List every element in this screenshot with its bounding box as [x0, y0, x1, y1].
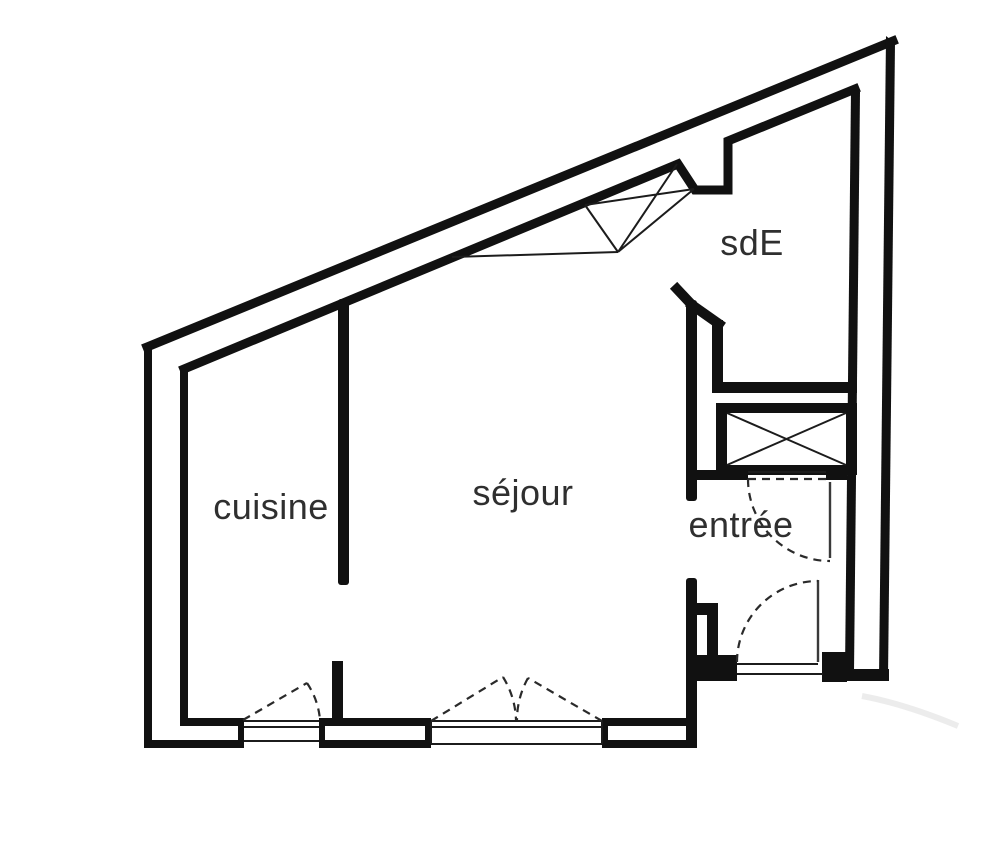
closet-box-edge [716, 465, 857, 475]
wall-left-inner [180, 366, 188, 726]
sejour-door-swing-left [503, 677, 516, 720]
shadow-artifact [862, 696, 958, 726]
sejour-door-leaf-right [528, 678, 602, 721]
wall-partition-cuisine [338, 299, 349, 585]
wall-bottom-outer [602, 740, 697, 748]
wall-right-inner [845, 89, 860, 672]
closet-box-edge [846, 403, 857, 475]
wall-entrance-step [707, 615, 718, 658]
wall-top-outer [147, 41, 893, 347]
entrance-door-swing [737, 581, 818, 662]
floor-plan: cuisine séjour sdE entrée [0, 0, 1000, 862]
wall-right-cap [846, 669, 889, 681]
cuisine-door-leaf [243, 683, 307, 720]
wall-bottom-inner [602, 718, 697, 726]
wall-sde-shelf [712, 382, 857, 393]
sejour-door-leaf-left [431, 677, 503, 721]
wall-bottom-outer [319, 740, 431, 748]
wall-right-outer [879, 36, 895, 678]
cuisine-door-swing [307, 683, 320, 720]
jamb [319, 718, 325, 748]
room-labels: cuisine séjour sdE entrée [213, 222, 793, 545]
walls [144, 36, 895, 748]
room-label-sde: sdE [720, 222, 784, 263]
wall-sde-spine2 [712, 320, 723, 390]
closet-box-edge [716, 403, 727, 475]
room-label-sejour: séjour [472, 472, 573, 513]
floor-plan-canvas: cuisine séjour sdE entrée [0, 0, 1000, 862]
wall-bottom-outer [144, 740, 244, 748]
sejour-door-swing-right [517, 678, 528, 720]
wall-partition-stub [332, 661, 343, 726]
wall-entrance-step [686, 603, 718, 615]
room-label-cuisine: cuisine [213, 486, 329, 527]
cuisine-door-threshold [244, 721, 319, 741]
entrance-threshold [737, 664, 823, 674]
wall-entrance-step [697, 655, 737, 681]
wall-entrance-pier [822, 652, 847, 682]
closet-x-icon [727, 413, 846, 465]
wall-bottom-inner [180, 718, 244, 726]
wall-left-outer [144, 344, 152, 748]
room-label-entree: entrée [688, 504, 793, 545]
closet-box-edge [716, 403, 857, 413]
sejour-window [431, 721, 602, 744]
jamb [238, 718, 244, 748]
